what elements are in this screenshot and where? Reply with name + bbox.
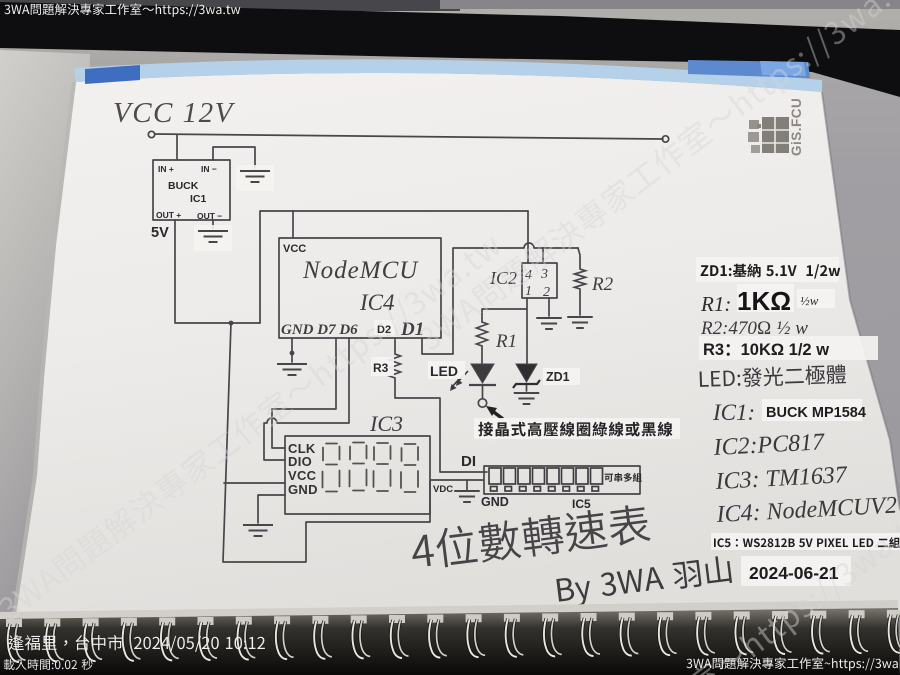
svg-text:R3：10KΩ 1/2 w: R3：10KΩ 1/2 w bbox=[703, 341, 829, 359]
svg-text:R2:470Ω ½ w: R2:470Ω ½ w bbox=[700, 318, 808, 339]
svg-text:IN +: IN + bbox=[158, 164, 174, 174]
svg-text:ZD1: ZD1 bbox=[546, 370, 570, 384]
svg-text:2024-06-21: 2024-06-21 bbox=[749, 563, 839, 583]
svg-text:1KΩ: 1KΩ bbox=[737, 286, 791, 316]
svg-text:GiS.FCU: GiS.FCU bbox=[789, 98, 804, 156]
svg-text:1: 1 bbox=[525, 284, 532, 299]
svg-text:OUT −: OUT − bbox=[197, 211, 222, 221]
svg-text:3: 3 bbox=[540, 267, 548, 282]
svg-text:GND: GND bbox=[481, 495, 509, 509]
svg-text:GND: GND bbox=[288, 482, 318, 497]
svg-text:VCC: VCC bbox=[283, 243, 306, 255]
svg-text:5V: 5V bbox=[151, 225, 169, 241]
svg-text:R1:: R1: bbox=[700, 292, 731, 316]
svg-text:R3: R3 bbox=[373, 361, 389, 375]
svg-text:NodeMCU: NodeMCU bbox=[302, 257, 419, 284]
svg-text:VCC: VCC bbox=[288, 468, 317, 483]
svg-text:BUCK MP1584: BUCK MP1584 bbox=[766, 405, 866, 421]
svg-text:½w: ½w bbox=[800, 293, 819, 308]
svg-text:DIO: DIO bbox=[288, 454, 312, 469]
svg-text:R2: R2 bbox=[591, 274, 614, 295]
svg-text:DI: DI bbox=[461, 453, 476, 470]
svg-text:VDC: VDC bbox=[433, 484, 453, 495]
svg-text:D1: D1 bbox=[400, 319, 424, 340]
svg-text:VCC 12V: VCC 12V bbox=[113, 97, 236, 129]
svg-text:GND D7 D6: GND D7 D6 bbox=[281, 322, 358, 338]
svg-text:IC1: IC1 bbox=[190, 193, 207, 205]
svg-text:OUT +: OUT + bbox=[156, 210, 181, 220]
svg-text:IC1:: IC1: bbox=[712, 400, 755, 425]
svg-text:IC5: IC5 bbox=[572, 497, 591, 511]
svg-text:BUCK: BUCK bbox=[168, 180, 199, 192]
svg-text:IN −: IN − bbox=[201, 164, 217, 174]
svg-text:2: 2 bbox=[543, 285, 550, 300]
svg-text:LED: LED bbox=[430, 363, 458, 379]
svg-text:R1: R1 bbox=[495, 331, 517, 352]
svg-text:IC3: IC3 bbox=[369, 411, 403, 436]
